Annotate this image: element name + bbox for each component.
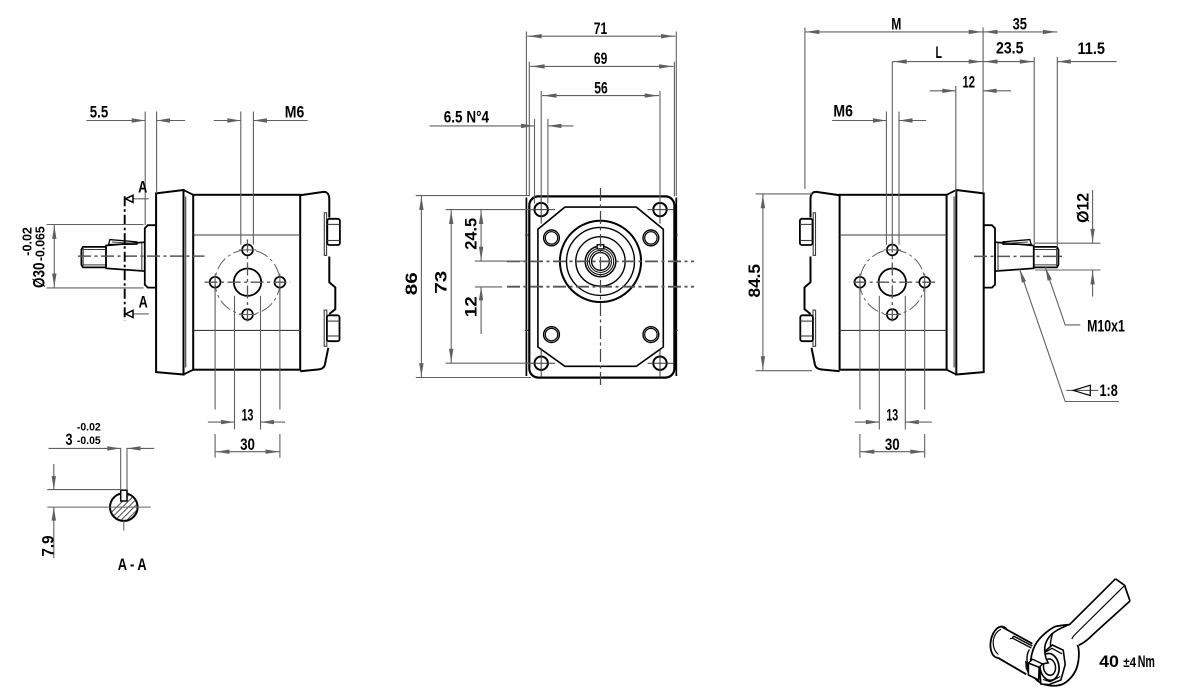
svg-text:73: 73: [433, 271, 451, 294]
svg-text:A - A: A - A: [118, 556, 147, 574]
svg-text:71: 71: [594, 20, 607, 38]
svg-text:-0.05: -0.05: [77, 435, 101, 447]
svg-text:L: L: [936, 44, 943, 62]
svg-text:-0.065: -0.065: [34, 226, 48, 261]
svg-text:M: M: [891, 16, 901, 34]
svg-text:-0.02: -0.02: [21, 227, 35, 256]
svg-text:35: 35: [1013, 16, 1027, 34]
svg-text:30: 30: [240, 436, 255, 454]
svg-text:23.5: 23.5: [996, 40, 1023, 58]
svg-text:A: A: [139, 294, 148, 312]
svg-text:±4: ±4: [1123, 654, 1136, 670]
svg-text:24.5: 24.5: [462, 218, 480, 250]
svg-text:7.9: 7.9: [40, 536, 58, 557]
svg-text:13: 13: [886, 406, 898, 424]
svg-text:6.5 N°4: 6.5 N°4: [444, 109, 490, 127]
svg-text:A: A: [138, 179, 147, 197]
svg-text:M6: M6: [833, 103, 853, 121]
svg-text:12: 12: [462, 296, 480, 317]
svg-text:56: 56: [594, 79, 607, 97]
svg-text:69: 69: [594, 50, 607, 68]
svg-text:1:8: 1:8: [1100, 382, 1118, 400]
svg-text:5.5: 5.5: [90, 104, 108, 122]
svg-text:Nm: Nm: [1138, 653, 1155, 671]
svg-text:3: 3: [66, 431, 73, 449]
svg-text:M6: M6: [285, 104, 305, 122]
svg-text:13: 13: [242, 406, 254, 424]
svg-text:11.5: 11.5: [1078, 40, 1106, 58]
svg-text:86: 86: [403, 272, 421, 295]
svg-text:M10x1: M10x1: [1087, 318, 1125, 336]
svg-text:-0.02: -0.02: [77, 422, 101, 434]
svg-text:84.5: 84.5: [746, 264, 764, 298]
svg-text:Ø30: Ø30: [31, 263, 49, 289]
svg-text:Ø12: Ø12: [1074, 193, 1092, 223]
svg-text:30: 30: [885, 436, 900, 454]
svg-text:40: 40: [1099, 653, 1119, 671]
svg-text:12: 12: [963, 73, 976, 91]
